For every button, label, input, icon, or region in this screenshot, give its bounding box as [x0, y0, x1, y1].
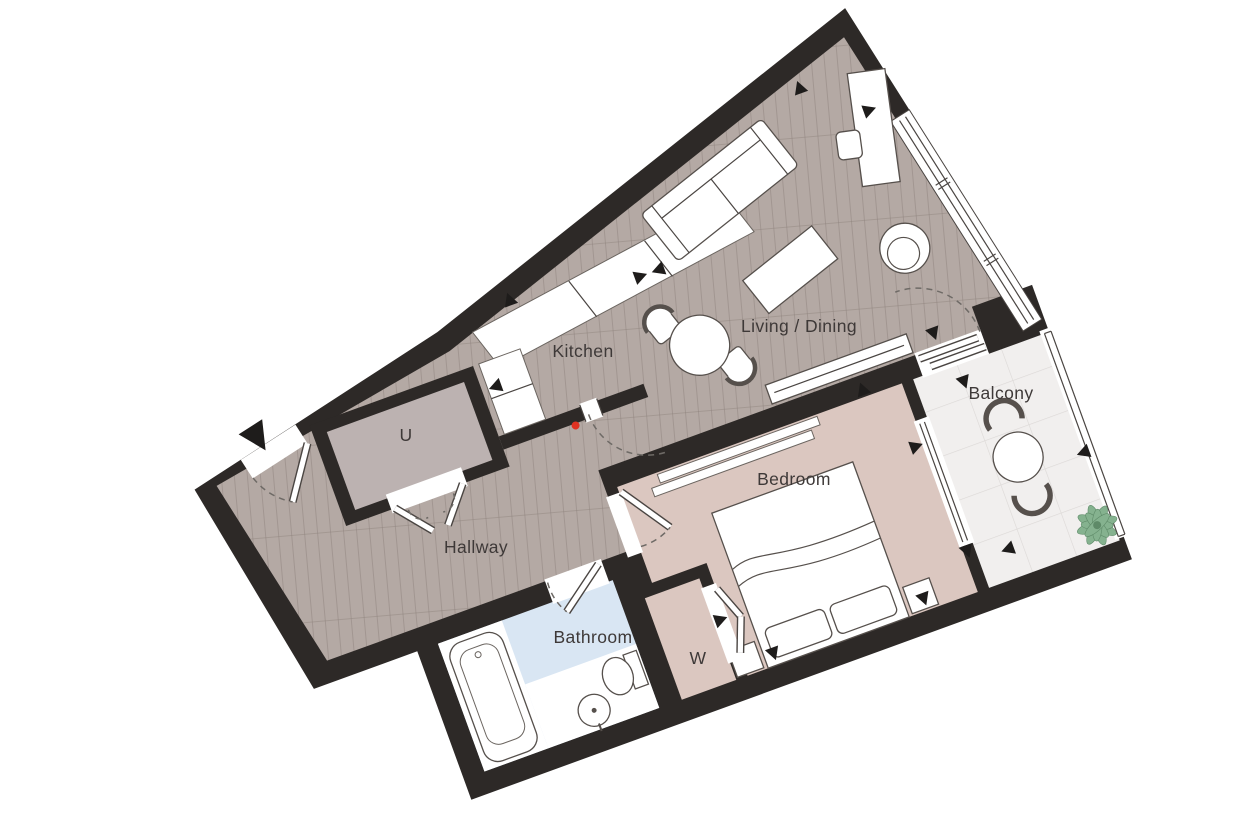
- desk-chair: [835, 130, 863, 161]
- floor-plan-canvas: Kitchen Living / Dining Balcony Bedroom …: [0, 0, 1245, 817]
- room-label-wardrobe: W: [690, 648, 707, 668]
- floor-plan-drawing: Kitchen Living / Dining Balcony Bedroom …: [0, 0, 1245, 817]
- room-label-utility: U: [399, 425, 412, 445]
- plan-rotated-group: [116, 0, 1140, 817]
- room-label-balcony: Balcony: [968, 383, 1033, 403]
- room-label-bathroom: Bathroom: [553, 627, 632, 647]
- room-label-kitchen: Kitchen: [552, 341, 613, 361]
- room-label-bedroom: Bedroom: [757, 469, 831, 489]
- room-label-living-dining: Living / Dining: [741, 316, 857, 336]
- room-label-hallway: Hallway: [444, 537, 508, 557]
